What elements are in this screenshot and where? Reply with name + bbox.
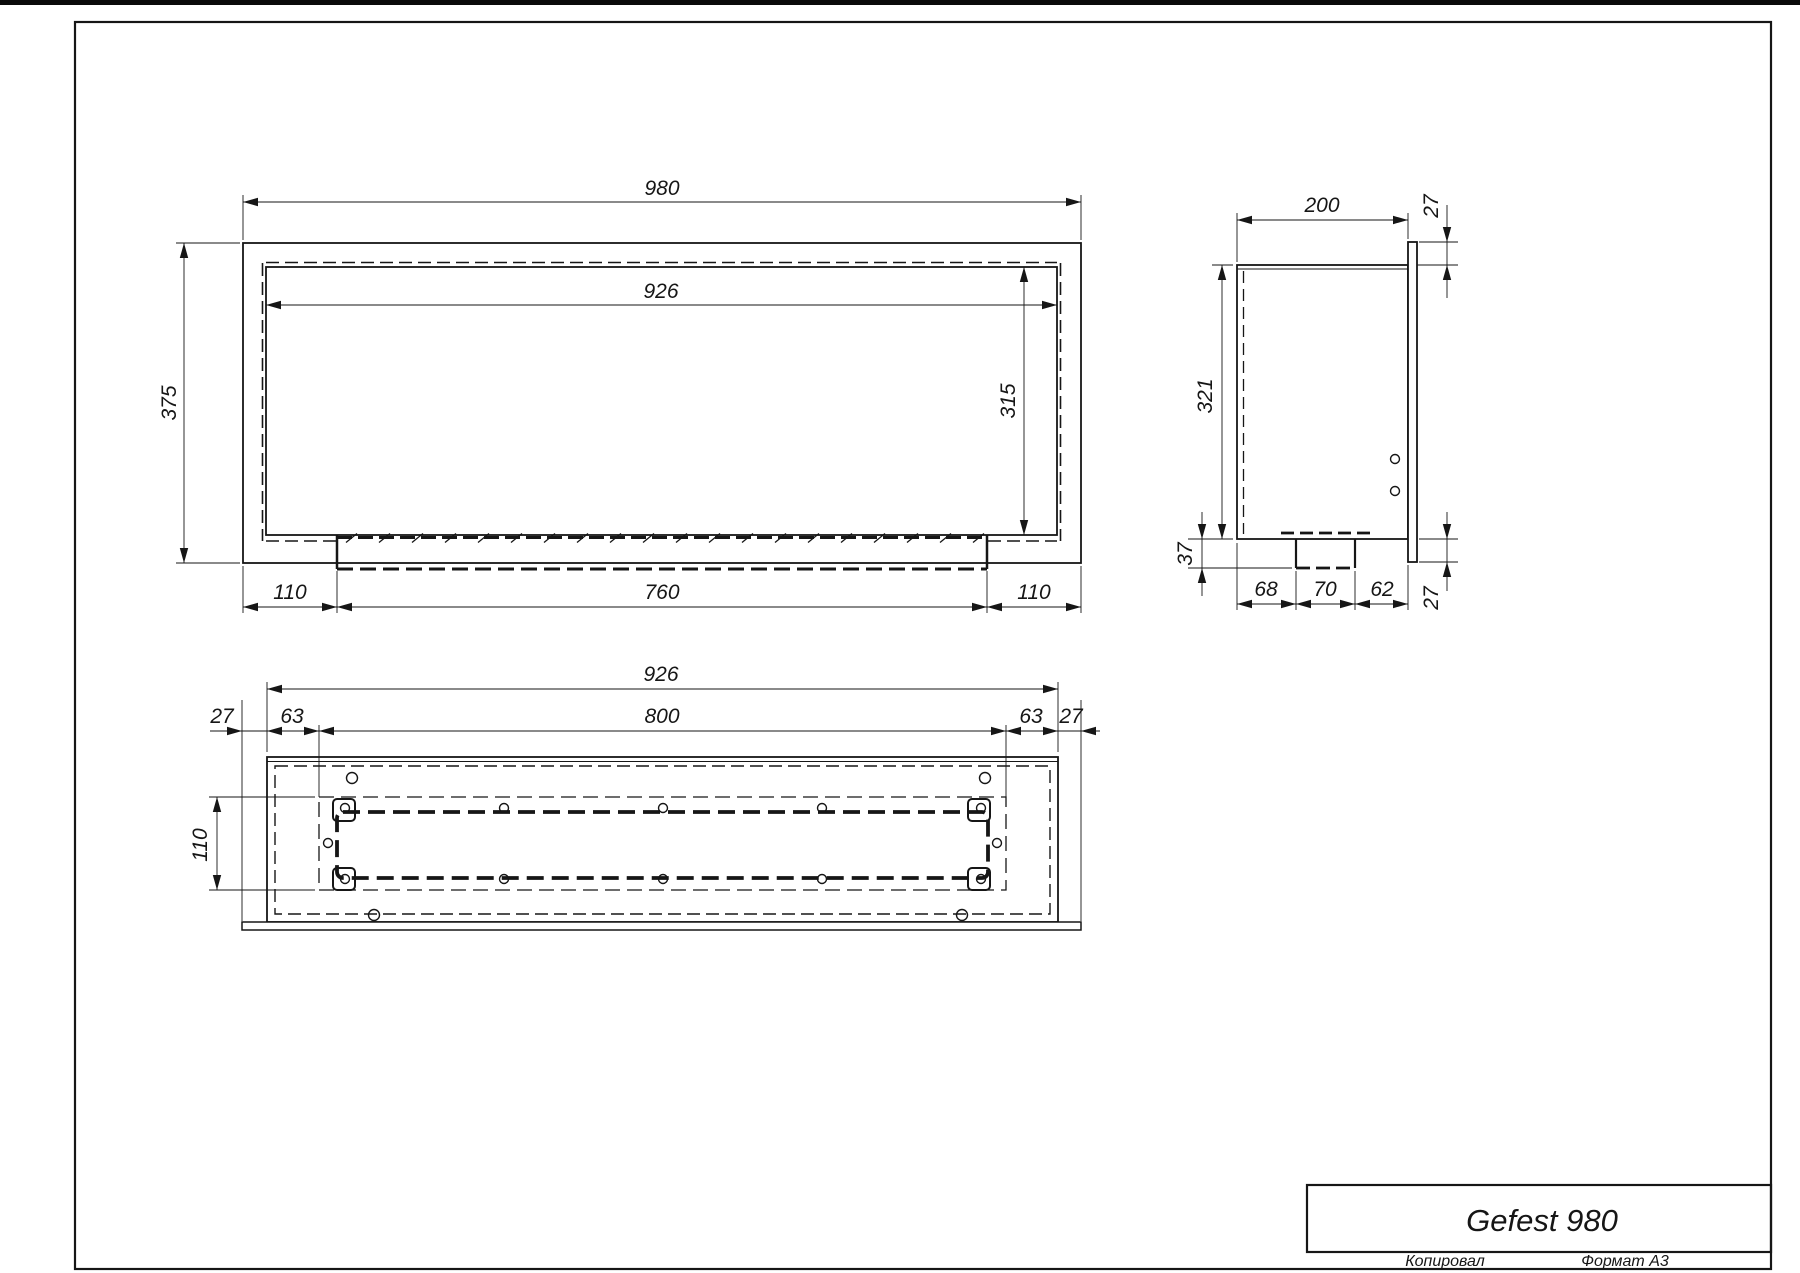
drawing-frame: [75, 22, 1771, 1269]
top-burner-flange: [337, 812, 988, 878]
dim-value-dim_wall_left: 27: [209, 705, 235, 728]
dim-value-dim_inset_left: 63: [280, 705, 304, 728]
dim-value-dim_opening_depth: 110: [189, 828, 212, 862]
dim-value-dim_overall_width: 980: [644, 177, 679, 200]
dimension-arrow: [304, 727, 319, 735]
burner-screw-holes: [324, 804, 1002, 884]
dimension-arrow: [267, 685, 282, 693]
dim-value-dim_flange_top: 27: [1420, 193, 1443, 219]
dim-value-dim_bottom_center: 760: [644, 581, 679, 604]
dimension-arrow: [1198, 524, 1206, 539]
drawing-sheet: 9809263753151107601102002732137687062279…: [0, 0, 1800, 1273]
dimension-arrow: [337, 603, 352, 611]
dim-value-dim_bottom_a: 68: [1254, 578, 1278, 601]
dim-value-dim_depth: 200: [1303, 194, 1339, 217]
dim-value-dim_bottom_b: 70: [1313, 578, 1337, 601]
body-hole: [957, 910, 968, 921]
dimension-arrow: [1393, 216, 1408, 224]
title-block: Gefest 980 Копировал Формат А3: [1307, 1185, 1771, 1270]
dimension-arrow: [213, 797, 221, 812]
dimension-arrow: [1443, 524, 1451, 539]
mount-hole: [1391, 487, 1400, 496]
body-hole: [347, 773, 358, 784]
dimension-arrow: [1218, 524, 1226, 539]
dimension-arrow: [180, 243, 188, 258]
dimension-arrow: [1218, 265, 1226, 280]
dimension-arrow: [1020, 520, 1028, 535]
page-top-edge: [0, 0, 1800, 5]
dimension-arrow: [1020, 267, 1028, 282]
dim-value-dim_height: 321: [1194, 378, 1217, 413]
dim-value-dim_bottom_c: 62: [1370, 578, 1394, 601]
dimension-arrow: [1443, 562, 1451, 577]
dimension-arrow: [1443, 227, 1451, 242]
side-view: [1237, 242, 1417, 568]
footer-copied-label: Копировал: [1405, 1253, 1485, 1270]
top-body-outline: [267, 757, 1058, 922]
dim-value-dim_burner_drop: 37: [1174, 541, 1197, 566]
dimension-arrow: [1198, 568, 1206, 583]
dim-value-dim_flange_bottom: 27: [1420, 585, 1443, 611]
dimension-arrow: [1281, 600, 1296, 608]
dimension-arrow: [227, 727, 242, 735]
side-front-plate-edge: [1408, 242, 1417, 562]
dimension-arrow: [987, 603, 1002, 611]
dim-value-dim_overall_height: 375: [158, 385, 181, 420]
front-window-opening: [266, 267, 1057, 535]
dim-value-dim_bottom_right: 110: [1017, 581, 1051, 604]
top-front-plate: [242, 922, 1081, 930]
dimension-arrow: [972, 603, 987, 611]
body-hole: [980, 773, 991, 784]
dim-value-dim_inner_width: 926: [643, 663, 678, 686]
dimension-arrow: [1066, 603, 1081, 611]
engineering-drawing-canvas: 9809263753151107601102002732137687062279…: [0, 0, 1800, 1273]
dimension-arrow: [1237, 600, 1252, 608]
dim-value-dim_inner_width: 926: [643, 280, 678, 303]
screw-hole: [324, 839, 333, 848]
burner-tray-front-body: [337, 535, 987, 569]
dimension-arrow: [319, 727, 334, 735]
dimension-arrow: [1066, 198, 1081, 206]
dimension-arrow: [1043, 685, 1058, 693]
burner-corner-tab: [968, 799, 990, 821]
dimension-arrow: [1443, 265, 1451, 280]
dimension-arrow: [243, 603, 258, 611]
dimension-arrow: [1081, 727, 1096, 735]
dim-value-dim_inner_height: 315: [997, 383, 1020, 418]
dimension-arrow: [213, 875, 221, 890]
dimension-arrow: [1042, 301, 1057, 309]
dimension-arrow: [266, 301, 281, 309]
dimension-arrow: [243, 198, 258, 206]
dimension-arrow: [180, 548, 188, 563]
top-view: [242, 757, 1081, 930]
dimension-arrow: [991, 727, 1006, 735]
body-hole: [369, 910, 380, 921]
mount-hole: [1391, 455, 1400, 464]
dimension-arrow: [322, 603, 337, 611]
screw-hole: [659, 804, 668, 813]
side-box-outline: [1237, 265, 1408, 539]
dim-value-dim_bottom_left: 110: [273, 581, 307, 604]
dimension-arrow: [1296, 600, 1311, 608]
dimension-arrow: [1006, 727, 1021, 735]
dimension-arrow: [1355, 600, 1370, 608]
screw-hole: [993, 839, 1002, 848]
screw-hole: [818, 875, 827, 884]
dimension-arrow: [1340, 600, 1355, 608]
dimension-arrow: [1393, 600, 1408, 608]
top-liner-dashed: [275, 766, 1050, 914]
dim-value-dim_opening_width: 800: [644, 705, 679, 728]
dim-value-dim_inset_right: 63: [1019, 705, 1043, 728]
dimension-arrow: [1237, 216, 1252, 224]
footer-format-label: Формат А3: [1581, 1253, 1669, 1270]
dimension-arrow: [1043, 727, 1058, 735]
drawing-title: Gefest 980: [1466, 1203, 1618, 1238]
dimension-arrow: [267, 727, 282, 735]
dim-value-dim_wall_right: 27: [1058, 705, 1084, 728]
